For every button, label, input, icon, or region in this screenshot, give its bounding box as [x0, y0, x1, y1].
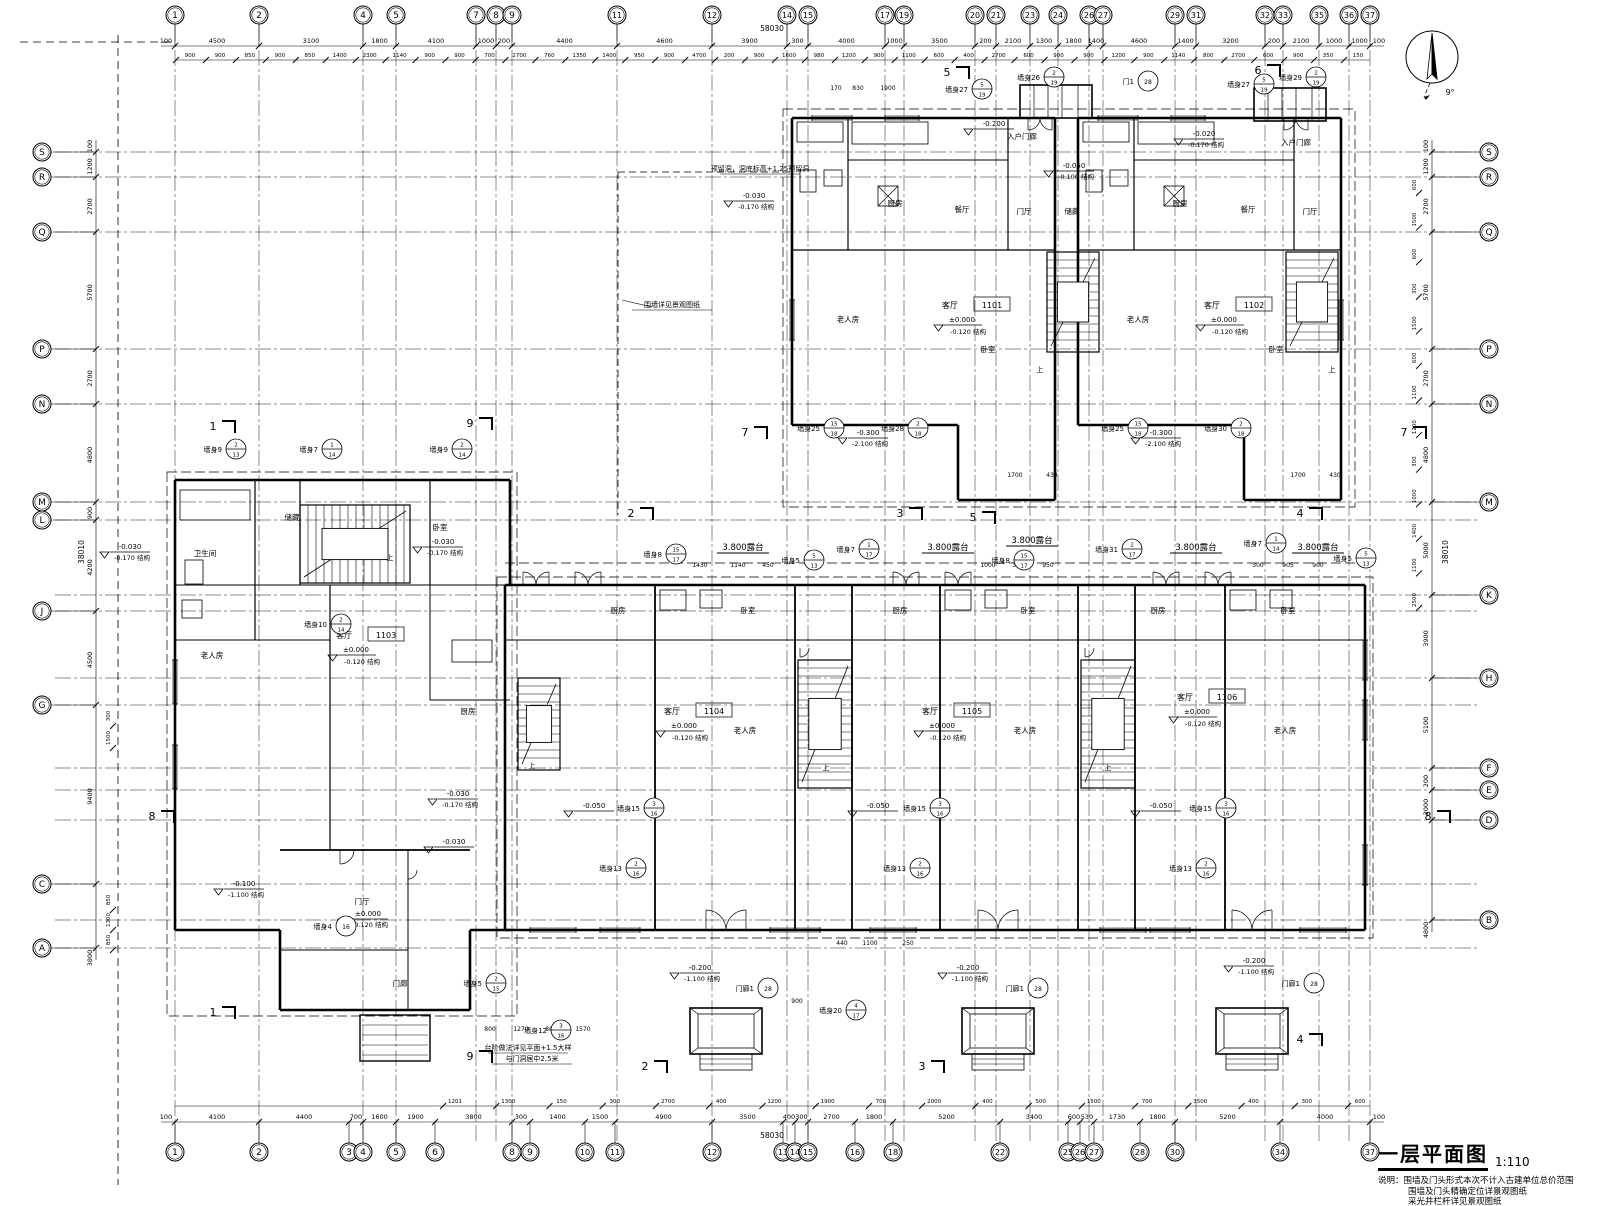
dimension-text: 2700 [86, 198, 94, 215]
grid-bubble-label: 27 [1089, 1148, 1099, 1157]
inner-dimension: 430 [1046, 472, 1058, 479]
dimension-text: 1100 [902, 53, 916, 59]
dimension-text: 700 [350, 1113, 362, 1121]
inner-dimension: 905 [1282, 562, 1294, 569]
svg-text:5: 5 [970, 511, 977, 524]
dimension-text: 300 [1412, 456, 1418, 467]
dimension-text: 400 [1248, 1099, 1259, 1105]
drawing-sheet: 1004500310018004100100020044004600390030… [0, 0, 1608, 1206]
detail-callout: 墙身13216 [599, 858, 646, 878]
detail-callout: 墙身28218 [881, 418, 928, 438]
dimension-text: 1900 [407, 1113, 424, 1121]
dimension-text: 1140 [1171, 53, 1185, 59]
svg-text:±0.000: ±0.000 [355, 910, 381, 918]
svg-text:1: 1 [1274, 537, 1278, 543]
section-marker: 4 [1297, 1033, 1323, 1046]
detail-callout: 墙身13216 [883, 858, 930, 878]
grid-bubble-label: 26 [1084, 11, 1094, 20]
dimension-text: 600 [1068, 1113, 1080, 1121]
dimension-text: 2700 [661, 1099, 675, 1105]
dimension-text: 1400 [602, 53, 616, 59]
dimension-text: 1500 [1087, 1099, 1101, 1105]
dimension-text: 3400 [1026, 1113, 1043, 1121]
callout-label: 墙身27 [945, 85, 968, 94]
dimension-text: 2700 [823, 1113, 840, 1121]
grid-bubble-label: S [39, 148, 45, 158]
room-label: 老人房 [1014, 725, 1037, 735]
dimension-text: 1300 [501, 1099, 515, 1105]
svg-text:-0.120 结构: -0.120 结构 [344, 657, 381, 666]
dimension-text: 4000 [1317, 1113, 1334, 1121]
svg-text:1: 1 [867, 543, 871, 549]
room-label: 卧室 [981, 344, 996, 354]
dimension-text: 600 [1412, 248, 1418, 259]
callout-label: 墙身25 [797, 424, 820, 433]
inner-dimension: 440 [836, 940, 848, 947]
svg-text:2: 2 [916, 422, 920, 428]
dimension-text: 4800 [1422, 922, 1430, 939]
svg-text:2: 2 [234, 443, 238, 449]
note-line: 采光井栏杆详见景观图纸 [1378, 1197, 1606, 1206]
dimension-text: 3900 [1422, 630, 1430, 647]
dimension-text: 3800 [465, 1113, 482, 1121]
dimension-text: 400 [963, 53, 974, 59]
grid-bubble-label: 4 [360, 1148, 366, 1158]
svg-text:19: 19 [979, 93, 986, 99]
title-block: 一层平面图 1:110 说明：围墙及门头形式本次不计入古建单位总价范围 围墙及门… [1378, 1138, 1606, 1206]
dimension-text: 2100 [1005, 37, 1022, 45]
drawing-title: 一层平面图 [1378, 1138, 1488, 1171]
room-label: 上 [1105, 763, 1112, 772]
dimension-text: 700 [484, 53, 495, 59]
svg-text:9: 9 [467, 1050, 474, 1063]
room-label: 客厅 [922, 706, 938, 716]
grid-bubble-label: H [1486, 674, 1493, 684]
dimension-text: 760 [544, 53, 555, 59]
dimension-text: 1600 [371, 1113, 388, 1121]
grid-bubble-label: 36 [1344, 11, 1354, 20]
room-label: 客厅 [1177, 692, 1193, 702]
svg-text:4: 4 [1297, 507, 1304, 520]
unit-number: 1101 [982, 301, 1002, 310]
dimension-text: 5700 [1422, 284, 1430, 301]
room-label: 门厅 [355, 897, 370, 906]
dimension-text: 900 [1293, 53, 1304, 59]
unit-number: 1102 [1244, 301, 1264, 310]
grid-bubble-label: 20 [970, 11, 980, 20]
dimension-text: 600 [1023, 53, 1034, 59]
section-marker: 7 [742, 426, 768, 439]
inner-dimension: 900 [1312, 562, 1324, 569]
dimension-text: 1350 [572, 53, 586, 59]
room-label: 卧室 [1281, 605, 1297, 615]
terrace-level-label: 3.800露台 [927, 542, 968, 553]
detail-callout: 墙身7117 [837, 539, 879, 559]
dimension-text: 4100 [209, 1113, 226, 1121]
room-label: 卧室 [741, 605, 756, 615]
callout-label: 墙身9 [430, 445, 448, 454]
svg-text:1: 1 [210, 1006, 217, 1019]
drawing-notes: 说明：围墙及门头形式本次不计入古建单位总价范围 围墙及门头精确定位详景观图纸 采… [1378, 1176, 1606, 1206]
grid-bubble-label: G [39, 701, 46, 711]
grid-bubble-label: R [1486, 173, 1492, 183]
svg-text:-0.170 结构: -0.170 结构 [738, 202, 775, 211]
dimension-text: 3100 [303, 37, 320, 45]
svg-text:19: 19 [1261, 88, 1268, 94]
svg-text:18: 18 [915, 432, 922, 438]
inner-dimension: 250 [902, 940, 914, 947]
svg-text:17: 17 [853, 1014, 860, 1020]
grid-bubble-label: 2 [256, 1148, 262, 1158]
room-label: 老人房 [734, 725, 757, 735]
callout-label: 墙身13 [883, 864, 906, 873]
svg-text:1: 1 [330, 443, 334, 449]
level-mark: -0.100-1.100 结构 [214, 880, 265, 899]
svg-text:-0.200: -0.200 [983, 120, 1006, 128]
dimension-text: 900 [1053, 53, 1064, 59]
svg-text:-0.170 结构: -0.170 结构 [1188, 140, 1225, 149]
room-label: 上 [387, 553, 394, 562]
section-marker: 1 [210, 420, 236, 433]
dimension-text: 900 [454, 53, 465, 59]
room-label: 厨房 [893, 605, 908, 615]
dimension-text: 900 [754, 53, 765, 59]
dimension-text: 4900 [655, 1113, 672, 1121]
svg-text:2: 2 [460, 443, 464, 449]
leader-note: 预留洞，洞底标高+1.25预留洞 [711, 164, 809, 173]
svg-text:16: 16 [917, 872, 924, 878]
dimension-text: 1500 [106, 731, 112, 745]
svg-text:5: 5 [1364, 552, 1368, 558]
grid-bubble-label: 30 [1170, 1148, 1180, 1157]
svg-text:±0.000: ±0.000 [929, 722, 955, 730]
note-line: 围墙及门头精确定位详景观图纸 [1378, 1187, 1606, 1198]
dimension-text: 100 [1373, 1113, 1385, 1121]
inner-dimension: 1700 [1007, 472, 1022, 479]
svg-text:-0.030: -0.030 [447, 790, 470, 798]
dimension-text: 1400 [1412, 523, 1418, 537]
callout-label: 墙身28 [881, 424, 904, 433]
callout-label: 墙身7 [837, 545, 855, 554]
inner-dimension: 1700 [1290, 472, 1305, 479]
dimension-text: 5200 [1219, 1113, 1236, 1121]
grid-bubble-label: P [39, 345, 45, 355]
room-label: 老人房 [1127, 314, 1150, 324]
svg-text:16: 16 [633, 872, 640, 878]
grid-bubble-label: 1 [172, 11, 178, 21]
svg-text:17: 17 [866, 553, 873, 559]
svg-text:-0.200: -0.200 [689, 964, 712, 972]
svg-text:16: 16 [937, 812, 944, 818]
svg-text:2: 2 [1314, 71, 1318, 77]
svg-text:2: 2 [1204, 862, 1208, 868]
svg-text:14: 14 [338, 628, 345, 634]
svg-text:9: 9 [467, 417, 474, 430]
callout-label: 墙身9 [204, 445, 222, 454]
dimension-text: 700 [876, 1099, 887, 1105]
grid-bubble-label: 4 [360, 11, 366, 21]
leader-note: 台阶做法详见平面+1.5大样 [485, 1043, 572, 1052]
dimension-text: 1300 [106, 913, 112, 927]
detail-callout: 墙身9214 [430, 439, 472, 459]
grid-bubble-label: L [39, 516, 44, 526]
detail-callout: 墙身27519 [945, 79, 992, 99]
level-mark: -0.030-0.170 结构 [724, 192, 775, 211]
dimension-text: 2000 [927, 1099, 941, 1105]
dimension-text: 300 [609, 1099, 620, 1105]
inner-dimension: 1100 [862, 940, 877, 947]
room-label: 上 [529, 761, 536, 770]
callout-label: 门廊1 [736, 984, 754, 993]
svg-text:-2.100 结构: -2.100 结构 [852, 439, 889, 448]
svg-text:±0.000: ±0.000 [671, 722, 697, 730]
dimension-text: 530 [1081, 1113, 1093, 1121]
grid-bubble-label: 35 [1314, 11, 1324, 20]
svg-text:17: 17 [1129, 553, 1136, 559]
dimension-text: 900 [86, 507, 94, 519]
callout-label: 门廊1 [1282, 979, 1300, 988]
svg-text:-0.200: -0.200 [1243, 957, 1266, 965]
svg-text:-0.120 结构: -0.120 结构 [672, 733, 709, 742]
svg-text:-0.030: -0.030 [119, 543, 142, 551]
dimension-text: 600 [1355, 1099, 1366, 1105]
svg-text:2: 2 [642, 1060, 649, 1073]
detail-callout: 墙身9213 [204, 439, 246, 459]
dimension-text: 3800 [86, 950, 94, 967]
dimension-text: 1500 [1412, 212, 1418, 226]
svg-text:5: 5 [944, 66, 951, 79]
section-marker: 8 [149, 810, 175, 823]
grid-bubble-label: 14 [782, 11, 792, 20]
dimension-text: 200 [1268, 37, 1280, 45]
dimension-text: 600 [1412, 179, 1418, 190]
svg-text:15: 15 [1135, 422, 1142, 428]
dimension-text: 300 [106, 710, 112, 721]
level-mark: -0.030-0.170 结构 [100, 543, 151, 562]
grid-bubble-label: 12 [707, 11, 717, 20]
grid-bubble-label: 3 [346, 1148, 352, 1158]
grid-bubble-label: 11 [612, 11, 622, 20]
svg-text:7: 7 [742, 426, 749, 439]
grid-bubble-label: 23 [1025, 11, 1035, 20]
floor-plan-drawing: 1004500310018004100100020044004600390030… [0, 0, 1608, 1206]
svg-text:-0.100 结构: -0.100 结构 [1058, 172, 1095, 181]
grid-bubble-label: M [1485, 498, 1493, 508]
callout-label: 墙身8 [992, 556, 1010, 565]
svg-text:14: 14 [1273, 547, 1280, 553]
section-marker: 3 [897, 507, 923, 520]
svg-text:-0.030: -0.030 [443, 838, 466, 846]
room-label: 卧室 [433, 522, 448, 532]
room-label: 上 [823, 763, 830, 772]
level-mark: -0.030-0.170 结构 [413, 538, 464, 557]
svg-text:28: 28 [764, 986, 772, 993]
dimension-text: 5700 [86, 284, 94, 301]
svg-text:14: 14 [329, 453, 336, 459]
dimension-text: 3500 [931, 37, 948, 45]
room-label: 客厅 [664, 706, 680, 716]
grid-bubble-label: J [40, 607, 44, 617]
dimension-text: 1000 [886, 37, 903, 45]
detail-callout: 墙身27519 [1227, 74, 1274, 94]
level-mark: -0.020-0.170 结构 [1174, 130, 1225, 149]
grid-bubble-label: 21 [991, 11, 1001, 20]
grid-bubble-label: C [39, 880, 45, 890]
dimension-text: 2700 [86, 370, 94, 387]
section-marker: 5 [944, 66, 970, 79]
grid-bubble-label: N [39, 400, 46, 410]
dimension-text: 1400 [1088, 37, 1105, 45]
callout-label: 墙身31 [1095, 545, 1118, 554]
room-label: 门厅 [1303, 207, 1319, 216]
callout-label: 墙身27 [1227, 80, 1250, 89]
dimension-text: 500 [1035, 1099, 1046, 1105]
grid-bubble-label: 37 [1365, 1148, 1375, 1157]
callout-label: 墙身25 [1101, 424, 1124, 433]
dimension-text: 1800 [371, 37, 388, 45]
svg-text:8: 8 [1425, 810, 1432, 823]
dimension-text: 800 [1203, 53, 1214, 59]
grid-bubble-label: 33 [1278, 11, 1288, 20]
callout-label: 墙身20 [819, 1006, 842, 1015]
dimension-text: 400 [783, 1113, 795, 1121]
dimension-text: 2100 [1293, 37, 1310, 45]
svg-text:28: 28 [1034, 986, 1042, 993]
grid-bubble-label: 22 [995, 1148, 1005, 1157]
svg-text:-2.100 结构: -2.100 结构 [1145, 439, 1182, 448]
dimension-text: 700 [1142, 1099, 1153, 1105]
dimension-text: 100 [86, 140, 94, 152]
grid-bubble-label: Q [1485, 228, 1492, 238]
svg-text:-1.100 结构: -1.100 结构 [952, 974, 989, 983]
detail-callout: 门128 [1123, 71, 1158, 91]
callout-label: 墙身15 [617, 804, 640, 813]
grid-bubble-label: 9 [509, 11, 515, 21]
dimension-text: 4800 [86, 447, 94, 464]
dimension-text: 1600 [782, 53, 796, 59]
dimension-text: 4400 [296, 1113, 313, 1121]
svg-text:-0.120 结构: -0.120 结构 [1185, 719, 1222, 728]
dimension-text: 980 [814, 53, 825, 59]
dimension-text: 1200 [86, 158, 94, 175]
dimension-text: 2700 [1231, 53, 1245, 59]
detail-callout: 墙身30218 [1204, 418, 1251, 438]
grid-bubble-label: 8 [493, 11, 499, 21]
callout-label: 墙身8 [644, 550, 662, 559]
svg-text:-0.170 结构: -0.170 结构 [427, 548, 464, 557]
svg-text:4: 4 [854, 1004, 858, 1010]
dimension-text: 4500 [209, 37, 226, 45]
svg-text:-0.050: -0.050 [867, 802, 890, 810]
unit-annotation: 客厅1102±0.000-0.120 结构 [1196, 297, 1272, 336]
detail-callout: 墙身5513 [782, 550, 824, 570]
level-mark: -0.050-0.100 结构 [1044, 162, 1095, 181]
dimension-text: 4600 [656, 37, 673, 45]
svg-text:-0.120 结构: -0.120 结构 [930, 733, 967, 742]
svg-text:-0.300: -0.300 [857, 429, 880, 437]
dimension-text: 1300 [1036, 37, 1053, 45]
dimension-text: 1500 [1412, 316, 1418, 330]
detail-callout: 墙身7114 [300, 439, 342, 459]
room-label: 卫生间 [194, 548, 217, 558]
level-mark: -0.200-1.100 结构 [938, 964, 989, 983]
detail-callout: 墙身81517 [644, 544, 686, 564]
svg-text:16: 16 [1203, 872, 1210, 878]
grid-bubble-label: 15 [803, 1148, 813, 1157]
dimension-text: 100 [160, 37, 172, 45]
svg-text:2: 2 [1052, 71, 1056, 77]
level-mark: -0.030-0.170 结构 [428, 790, 479, 809]
leader-note: 围墙详见景观图纸 [644, 300, 700, 309]
grid-bubble-label: 26 [1075, 1148, 1085, 1157]
callout-label: 墙身4 [314, 922, 333, 931]
grid-bubble-label: B [1486, 916, 1492, 926]
svg-text:±0.000: ±0.000 [343, 646, 369, 654]
grid-bubble-label: 10 [580, 1148, 590, 1157]
dimension-text: 900 [1083, 53, 1094, 59]
svg-text:-0.120 结构: -0.120 结构 [352, 920, 389, 929]
dimension-text: 400 [716, 1099, 727, 1105]
callout-label: 墙身15 [1189, 804, 1212, 813]
dimension-text: 900 [185, 53, 196, 59]
detail-callout: 墙身26219 [1017, 67, 1064, 87]
svg-text:-0.200: -0.200 [957, 964, 980, 972]
grid-bubble-label: 7 [473, 11, 479, 21]
svg-text:19: 19 [1051, 81, 1058, 87]
svg-text:3: 3 [559, 1024, 563, 1030]
detail-callout: 墙身416 [314, 916, 356, 936]
svg-text:3: 3 [652, 802, 656, 808]
dimension-text: 2700 [992, 53, 1006, 59]
grid-bubble-label: 31 [1191, 11, 1201, 20]
detail-callout: 墙身15316 [617, 798, 664, 818]
grid-bubble-label: D [1486, 816, 1493, 826]
inner-dimension: 450 [762, 562, 774, 569]
callout-label: 墙身7 [300, 445, 318, 454]
room-label: 老人房 [201, 650, 224, 660]
room-label: 厨房 [1151, 605, 1166, 615]
terrace-level-label: 3.800露台 [722, 542, 763, 553]
dimension-text: 1000 [1412, 489, 1418, 503]
inner-dimension: 1140 [730, 562, 745, 569]
grid-bubble-label: 2 [256, 11, 262, 21]
grid-bubble-label: 8 [509, 1148, 515, 1158]
unit-number: 1103 [376, 631, 396, 640]
svg-text:2: 2 [918, 862, 922, 868]
svg-text:3: 3 [897, 507, 904, 520]
svg-text:16: 16 [1223, 812, 1230, 818]
dimension-text: 1900 [821, 1099, 835, 1105]
svg-text:-0.050: -0.050 [583, 802, 606, 810]
unit-annotation: 客厅1104±0.000-0.120 结构 [656, 703, 732, 742]
svg-text:18: 18 [831, 432, 838, 438]
dimension-text: 5000 [1422, 542, 1430, 559]
dimension-text: 200 [1422, 775, 1430, 787]
dimension-text: 1400 [1177, 37, 1194, 45]
svg-text:-0.120 结构: -0.120 结构 [950, 327, 987, 336]
section-marker: 1 [210, 1006, 236, 1019]
svg-text:15: 15 [673, 548, 680, 554]
svg-text:-0.100: -0.100 [233, 880, 256, 888]
svg-text:2: 2 [1130, 543, 1134, 549]
grid-bubble-label: 1 [172, 1148, 178, 1158]
dimension-text: 5100 [1422, 717, 1430, 734]
dimension-text: 900 [1143, 53, 1154, 59]
svg-text:16: 16 [342, 924, 350, 931]
section-marker: 4 [1297, 507, 1323, 520]
dimension-text: 900 [664, 53, 675, 59]
svg-text:±0.000: ±0.000 [1211, 316, 1237, 324]
